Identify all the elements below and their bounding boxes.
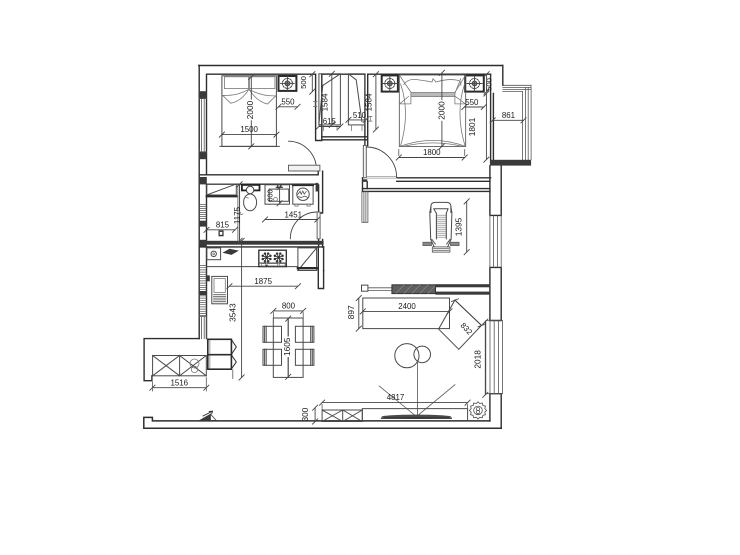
svg-text:2000: 2000 <box>437 101 447 120</box>
svg-text:800: 800 <box>282 302 296 311</box>
svg-text:1451: 1451 <box>285 210 303 219</box>
svg-text:832: 832 <box>459 321 475 337</box>
svg-text:550: 550 <box>281 97 295 106</box>
svg-text:2400: 2400 <box>398 302 416 311</box>
svg-text:600: 600 <box>265 189 274 201</box>
svg-text:1800: 1800 <box>423 148 441 157</box>
svg-text:300: 300 <box>300 407 310 421</box>
svg-text:615: 615 <box>323 117 337 126</box>
svg-text:500: 500 <box>485 78 494 91</box>
svg-text:4817: 4817 <box>387 393 405 402</box>
svg-text:2018: 2018 <box>473 350 483 369</box>
svg-text:1584: 1584 <box>320 93 329 111</box>
svg-text:1584: 1584 <box>365 93 374 111</box>
svg-text:1500: 1500 <box>240 125 258 134</box>
svg-text:1395: 1395 <box>454 217 464 236</box>
svg-text:500: 500 <box>299 76 308 89</box>
svg-text:1516: 1516 <box>171 378 189 387</box>
svg-text:897: 897 <box>346 305 356 319</box>
svg-text:815: 815 <box>216 220 230 229</box>
svg-text:1175: 1175 <box>233 206 242 224</box>
svg-text:861: 861 <box>502 111 515 120</box>
svg-text:2000: 2000 <box>245 100 255 119</box>
svg-text:1875: 1875 <box>254 277 272 286</box>
svg-text:3543: 3543 <box>227 303 237 322</box>
svg-text:550: 550 <box>465 98 479 107</box>
svg-text:1605: 1605 <box>282 337 292 356</box>
svg-text:1801: 1801 <box>467 117 477 136</box>
